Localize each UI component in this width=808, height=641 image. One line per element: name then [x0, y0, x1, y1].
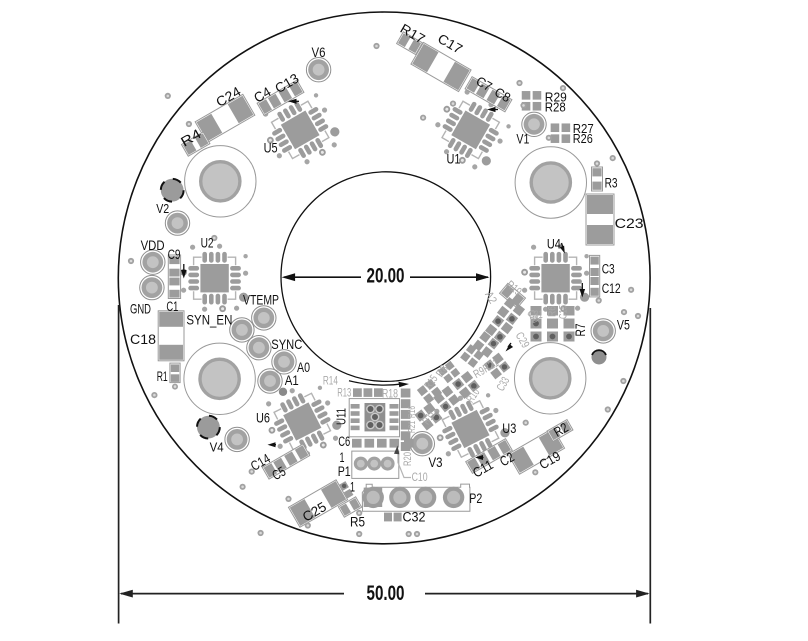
svg-text:U1: U1	[447, 152, 461, 167]
svg-text:C18: C18	[130, 332, 156, 347]
svg-text:VDD: VDD	[141, 237, 165, 253]
svg-text:SYNC: SYNC	[271, 336, 302, 352]
svg-text:P2: P2	[469, 491, 482, 506]
svg-text:C3: C3	[602, 262, 615, 277]
svg-text:U2: U2	[201, 236, 214, 251]
svg-text:1: 1	[340, 450, 345, 465]
svg-text:R7: R7	[573, 324, 588, 337]
svg-text:R28: R28	[545, 100, 566, 114]
svg-text:U6: U6	[256, 411, 270, 426]
svg-text:C10: C10	[412, 470, 428, 484]
svg-text:R14: R14	[323, 374, 338, 388]
svg-text:R3: R3	[605, 176, 618, 191]
svg-text:C9: C9	[168, 247, 181, 262]
svg-text:R1: R1	[157, 369, 168, 384]
svg-text:C23: C23	[615, 216, 644, 231]
svg-text:20.00: 20.00	[367, 263, 405, 287]
svg-text:V3: V3	[429, 455, 443, 470]
svg-text:U3: U3	[502, 421, 516, 436]
svg-text:R5: R5	[350, 515, 365, 530]
svg-text:V5: V5	[617, 317, 630, 332]
svg-text:C15: C15	[558, 305, 570, 319]
svg-text:U4: U4	[547, 236, 561, 251]
svg-text:C32: C32	[403, 510, 426, 525]
svg-text:R13: R13	[337, 385, 351, 399]
svg-text:V2: V2	[156, 201, 169, 216]
svg-text:GND: GND	[130, 301, 151, 317]
svg-text:U11: U11	[335, 408, 349, 425]
svg-text:A1: A1	[285, 373, 299, 388]
svg-text:VTEMP: VTEMP	[243, 292, 279, 308]
svg-text:U5: U5	[264, 141, 278, 156]
svg-text:C12: C12	[602, 281, 621, 296]
svg-text:SYN_EN: SYN_EN	[186, 312, 232, 328]
svg-text:P1: P1	[338, 464, 351, 479]
svg-text:V4: V4	[210, 440, 224, 455]
svg-text:R16: R16	[407, 406, 418, 418]
svg-text:R18: R18	[382, 387, 398, 401]
svg-text:C1: C1	[166, 299, 178, 314]
svg-text:1: 1	[350, 480, 355, 495]
svg-text:V6: V6	[312, 45, 326, 60]
svg-text:R26: R26	[573, 132, 593, 146]
svg-text:C6: C6	[338, 434, 350, 449]
svg-text:50.00: 50.00	[367, 581, 405, 605]
svg-text:A0: A0	[297, 360, 310, 375]
svg-text:R21: R21	[407, 421, 418, 433]
svg-text:V1: V1	[516, 132, 529, 147]
svg-text:R20: R20	[402, 452, 414, 466]
